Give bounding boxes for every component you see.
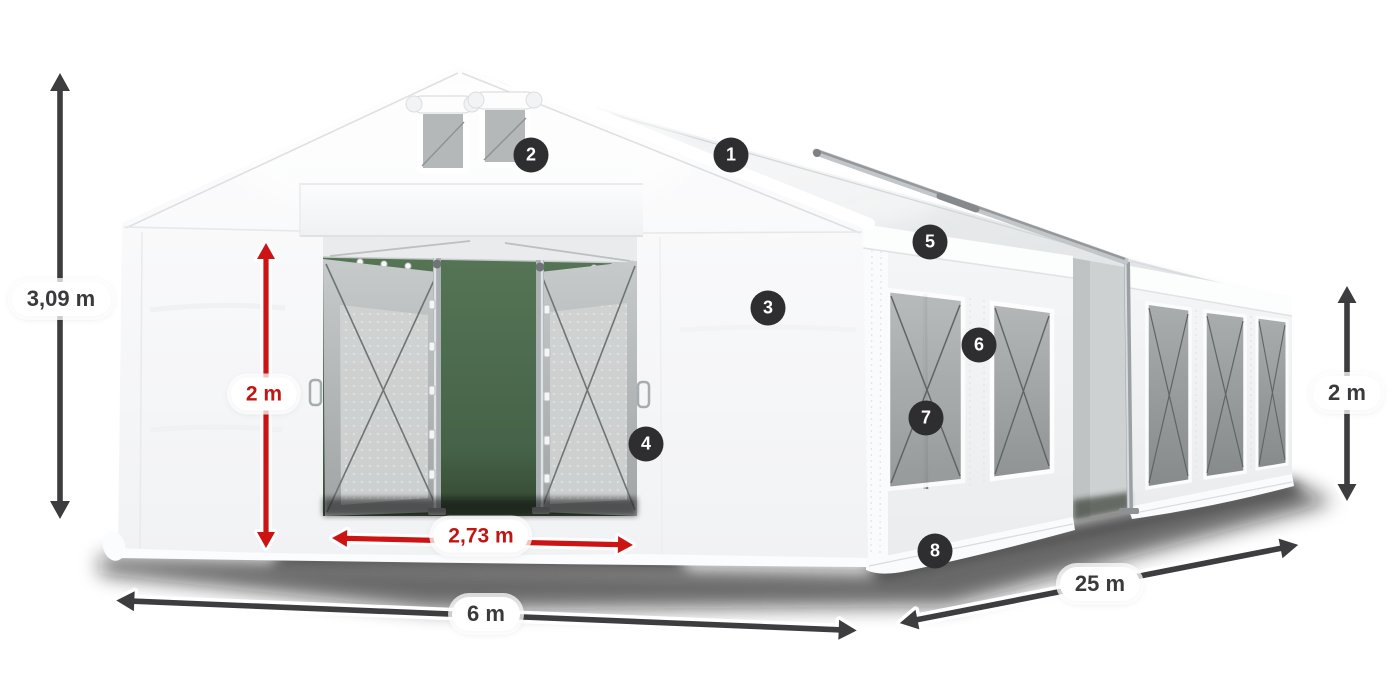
callout-badge-4: 4 [629, 427, 664, 462]
dimension-label-door-height: 2 m [231, 378, 297, 411]
dimension-label-front-width: 6 m [452, 597, 520, 631]
callout-badge-5: 5 [913, 225, 948, 260]
vent-window-left [406, 96, 480, 171]
callout-badge-2: 2 [514, 138, 549, 173]
callout-badge-7: 7 [909, 401, 944, 436]
side-window-mesh [1147, 303, 1287, 488]
sidewall-back-section [1128, 266, 1294, 519]
callout-badge-6: 6 [962, 328, 997, 363]
side-entrance-gap [1073, 258, 1139, 521]
callout-badge-1: 1 [714, 138, 749, 173]
dimension-label-side-height: 2 m [1313, 376, 1381, 410]
door-leaf-left [323, 259, 437, 516]
dimension-label-side-length: 25 m [1060, 567, 1140, 601]
callout-badge-8: 8 [918, 534, 953, 569]
front-entrance [300, 183, 649, 516]
entrance-header [300, 183, 643, 237]
tent-dimension-diagram: 3,09 m 2 m 2,73 m 6 m 25 m 2 m 1 2 3 4 5… [0, 0, 1400, 700]
dimension-label-door-width: 2,73 m [433, 520, 528, 553]
dimension-label-total-height: 3,09 m [12, 282, 111, 316]
callout-badge-3: 3 [751, 291, 786, 326]
tent-illustration [0, 0, 1400, 700]
sidewall-front-section [863, 224, 1075, 574]
door-leaf-right [540, 261, 637, 516]
